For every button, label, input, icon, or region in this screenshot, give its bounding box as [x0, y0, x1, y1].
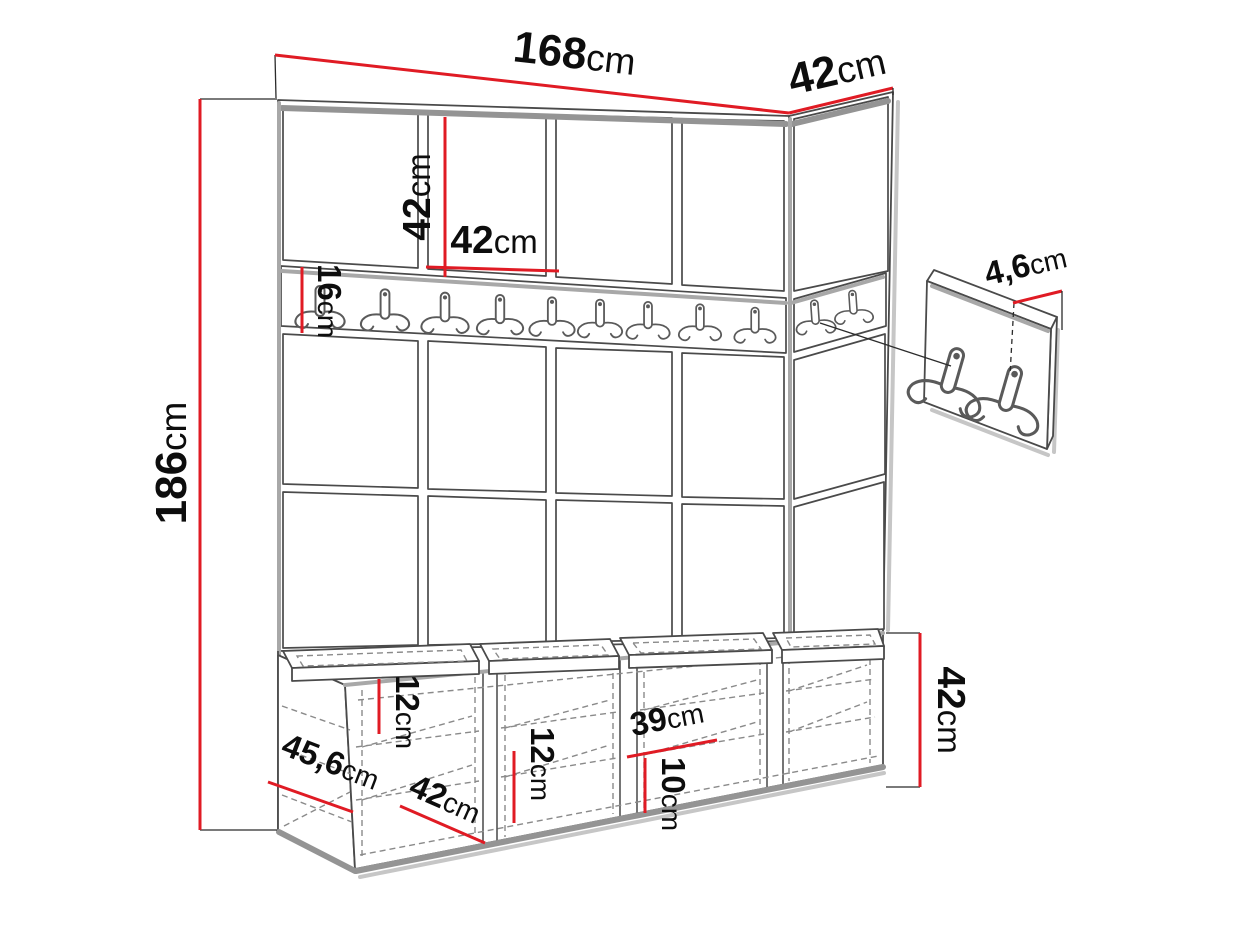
dim-rail-height-label: 16cm	[311, 264, 348, 338]
dim-shelf-gap-c-label: 10cm	[655, 757, 692, 831]
dim-total-width: 168cm	[275, 22, 789, 113]
dim-bench-height-label: 42cm	[929, 666, 972, 753]
shoe-bench	[278, 629, 884, 877]
furniture-dimension-diagram: 168cm 42cm 186cm 42cm 42cm 16cm	[0, 0, 1240, 930]
dim-shelf-gap-b-label: 12cm	[524, 727, 561, 801]
dim-panel-width-label: 42cm	[450, 219, 537, 262]
dim-total-height: 186cm	[147, 99, 277, 830]
dim-side-depth-label: 42cm	[783, 35, 890, 105]
dim-panel-thickness-label: 4,6cm	[981, 237, 1070, 292]
dim-shelf-gap-a-label: 12cm	[389, 675, 426, 749]
dim-bench-height: 42cm	[886, 633, 972, 787]
dim-total-width-label: 168cm	[511, 22, 639, 85]
dim-panel-height-label: 42cm	[396, 153, 439, 240]
diagram-canvas: 168cm 42cm 186cm 42cm 42cm 16cm	[0, 0, 1240, 930]
dim-total-height-label: 186cm	[147, 402, 196, 525]
